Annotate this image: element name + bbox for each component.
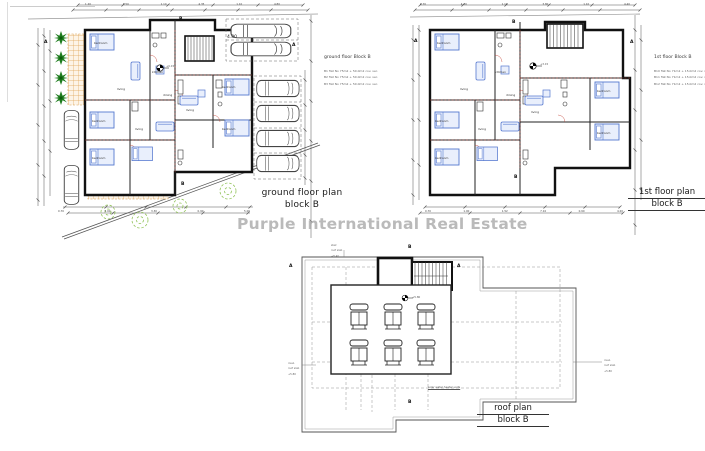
car-icon <box>257 155 299 171</box>
list-item: 4.20 <box>617 209 623 213</box>
list-item: 1.10 <box>236 2 242 6</box>
section-marker-b: B <box>408 246 411 251</box>
room-label-dining: dining <box>163 93 172 97</box>
room-label-living: living <box>460 87 468 91</box>
section-marker-b: B <box>181 183 184 188</box>
room-label-living: living <box>531 110 539 114</box>
section-marker-b: B <box>179 18 182 23</box>
list-item: B3 flat No 75m2 + 50.0m2 cov. ver. <box>324 81 378 87</box>
list-item: 0.70 <box>425 209 431 213</box>
sofa-icon <box>525 96 543 105</box>
roof-note-left: insul.roof slab+5.80 <box>288 361 299 377</box>
tree-icon <box>54 31 68 45</box>
landscape-trees <box>54 31 68 105</box>
site-boundary-line <box>410 14 640 17</box>
ground-level-label: +0.15 <box>166 65 174 68</box>
list-item: +5.80 <box>604 369 615 374</box>
section-marker-a: A <box>289 265 292 270</box>
car-icon <box>231 24 291 38</box>
list-item: 0.70 <box>58 209 64 213</box>
list-item: 4.35 <box>198 2 204 6</box>
section-marker-a: A <box>44 41 47 46</box>
first-floor-note-lines: B10 flat No 71m2 + 15.0m2 cov. ver.B11 f… <box>654 68 705 87</box>
list-item: 5.00 <box>244 209 250 213</box>
sofa-icon <box>131 62 140 80</box>
roof-plan-title: roof plan <box>477 403 549 415</box>
tree-icon <box>54 71 68 85</box>
room-label-kitchen: kitchen <box>152 70 163 74</box>
room-label-living: living <box>117 87 125 91</box>
sofa-icon <box>180 96 198 105</box>
sofa-icon <box>476 62 485 80</box>
list-item: 5.00 <box>105 209 111 213</box>
bed-icon <box>132 147 152 161</box>
room-label-bedroom: bedroom <box>597 131 610 135</box>
room-label-bedroom: bedroom <box>222 127 235 131</box>
roof-plan-title-block: roof plan block B <box>477 403 549 427</box>
list-item: +8.40 <box>331 254 342 259</box>
ground-bottom-dimensions: 0.705.003.300.905.00 <box>58 209 250 213</box>
car-icon <box>257 130 299 146</box>
solar-unit-icon <box>417 340 435 365</box>
ground-floor-note-title: ground floor Block B <box>324 55 371 60</box>
car-icon <box>257 105 299 121</box>
list-item: 0.90 <box>198 209 204 213</box>
staircase <box>547 24 583 48</box>
room-label-bedroom: bedroom <box>597 89 610 93</box>
first-level-label: +3.15 <box>540 63 548 66</box>
building-outline <box>430 22 630 195</box>
list-item: 4.20 <box>461 2 467 6</box>
tree-icon <box>54 91 68 105</box>
roof-note-right: insul.roof slab+5.80 <box>604 358 615 374</box>
list-item: 1.10 <box>161 2 167 6</box>
ground-floor-plan-subtitle: block B <box>248 200 356 210</box>
section-marker-b: B <box>514 176 517 181</box>
car-icon <box>64 165 78 204</box>
list-item: B12 flat No 71m2 + 15.0m2 cov. ver. <box>654 81 705 87</box>
list-item: 1.00 <box>463 209 469 213</box>
room-label-bedroom: bedroom <box>435 119 448 123</box>
list-item: 3.50 <box>123 2 129 6</box>
room-label-bedroom: bedroom <box>435 156 448 160</box>
room-label-living: living <box>186 108 194 112</box>
floor-plan-sheet: Purple International Real Estate ground … <box>0 0 705 451</box>
room-label-bedroom: bedroom <box>92 156 105 160</box>
first-floor-plan-title: 1st floor plan <box>628 187 705 199</box>
room-label-bedroom: bedroom <box>437 41 450 45</box>
sheet-border-left <box>7 2 8 102</box>
list-item: 1.52 <box>502 209 508 213</box>
list-item: 4.80 <box>274 2 280 6</box>
room-label-dining: dining <box>506 93 515 97</box>
sofa-icon <box>156 122 174 131</box>
car-icon <box>257 80 299 96</box>
room-label-kitchen: kitchen <box>495 70 506 74</box>
list-item: 3.30 <box>151 209 157 213</box>
watermark-text: Purple International Real Estate <box>237 215 528 233</box>
list-item: B11 flat No 71m2 + 15.0m2 cov. ver. <box>654 74 705 80</box>
section-marker-b: B <box>512 21 515 26</box>
list-item: 7.10 <box>540 209 546 213</box>
list-item: 4.40 <box>624 2 630 6</box>
site-boundary-line <box>28 14 318 19</box>
list-item: 1.10 <box>583 2 589 6</box>
section-marker-a: A <box>630 41 633 46</box>
room-label-bedroom: bedroom <box>222 85 235 89</box>
ground-top-dimensions: 1.203.501.104.351.104.80 <box>85 2 280 6</box>
list-item: 3.80 <box>542 2 548 6</box>
roof-plan-subtitle: block B <box>477 415 549 427</box>
list-item: 1.10 <box>502 2 508 6</box>
solar-unit-icon <box>384 304 402 329</box>
staircase <box>185 36 214 61</box>
roof-plan-drawing <box>286 242 636 451</box>
solar-unit-icon <box>350 304 368 329</box>
roof-level-label: +5.80 <box>412 296 420 299</box>
solar-unit-icon <box>384 340 402 365</box>
list-item: 0.90 <box>579 209 585 213</box>
section-marker-b: B <box>408 401 411 406</box>
parking-dimension-label: 4.80 <box>227 35 237 40</box>
roof-unit-note: solar water heater units <box>428 386 460 389</box>
solar-unit-icon <box>417 304 435 329</box>
section-marker-a: A <box>414 40 417 45</box>
list-item: B2 flat No 75m2 + 50.0m2 cov. ver. <box>324 74 378 80</box>
table-icon <box>543 90 550 97</box>
bed-icon <box>477 147 497 161</box>
room-label-living: living <box>135 127 143 131</box>
roof-note-top: stairroof slab+8.40 <box>331 243 342 259</box>
first-floor-plan-subtitle: block B <box>628 199 705 211</box>
car-icon <box>64 110 78 149</box>
solar-unit-icon <box>350 340 368 365</box>
room-label-living: living <box>478 127 486 131</box>
sofa-icon <box>501 122 519 131</box>
first-bottom-dimensions: 0.701.001.527.100.904.20 <box>425 209 623 213</box>
list-item: 0.70 <box>420 2 426 6</box>
room-label-bedroom: bedroom <box>94 41 107 45</box>
ground-floor-note-lines: B1 flat No 75m2 + 50.0m2 cov. ver.B2 fla… <box>324 68 378 87</box>
ground-floor-plan-title: ground floor plan <box>248 188 356 198</box>
car-icon <box>231 42 291 56</box>
section-marker-a: A <box>292 44 295 49</box>
first-floor-note-title: 1st floor Block B <box>654 55 691 60</box>
room-label-bedroom: bedroom <box>92 119 105 123</box>
tree-icon <box>54 51 68 65</box>
list-item: +5.80 <box>288 372 299 377</box>
first-top-dimensions: 0.704.201.103.801.104.40 <box>420 2 630 6</box>
table-icon <box>198 90 205 97</box>
first-floor-plan-title-block: 1st floor plan block B <box>628 187 705 211</box>
list-item: 1.20 <box>85 2 91 6</box>
section-marker-a: A <box>457 265 460 270</box>
